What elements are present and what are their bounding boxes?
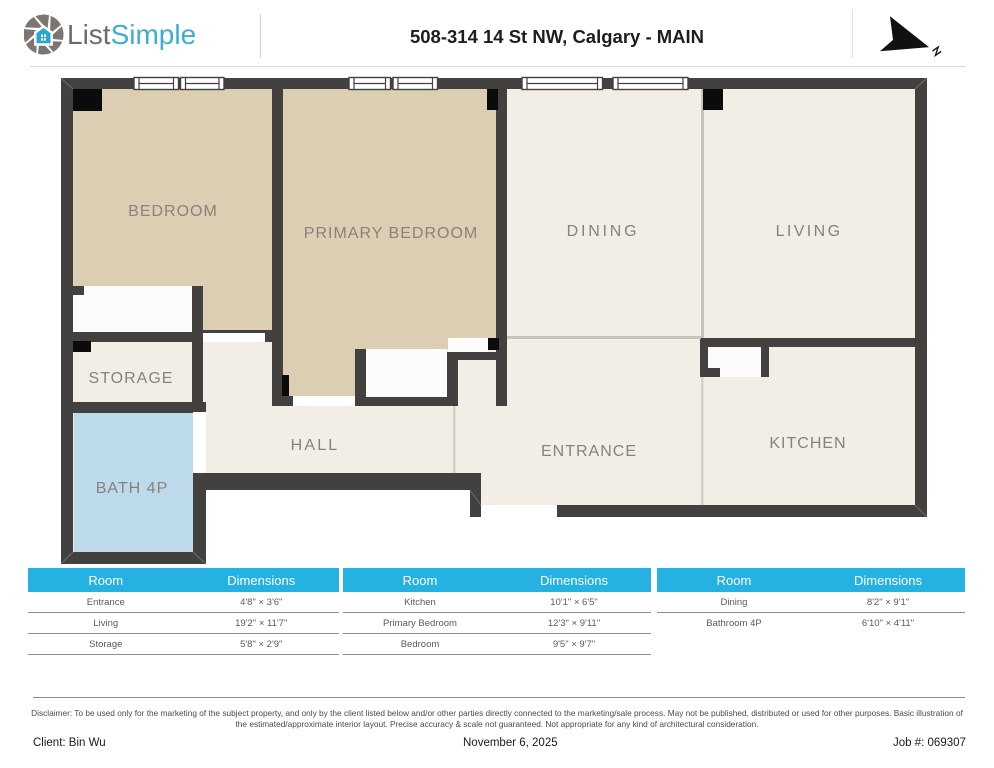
svg-text:STORAGE: STORAGE	[89, 370, 174, 387]
svg-text:KITCHEN: KITCHEN	[769, 435, 846, 452]
svg-text:ENTRANCE: ENTRANCE	[541, 443, 637, 460]
svg-text:PRIMARY BEDROOM: PRIMARY BEDROOM	[304, 225, 478, 242]
svg-text:BATH 4P: BATH 4P	[96, 480, 169, 497]
svg-text:LIVING: LIVING	[776, 223, 843, 240]
svg-text:BEDROOM: BEDROOM	[128, 203, 218, 220]
svg-text:HALL: HALL	[291, 437, 340, 454]
svg-text:DINING: DINING	[567, 223, 640, 240]
